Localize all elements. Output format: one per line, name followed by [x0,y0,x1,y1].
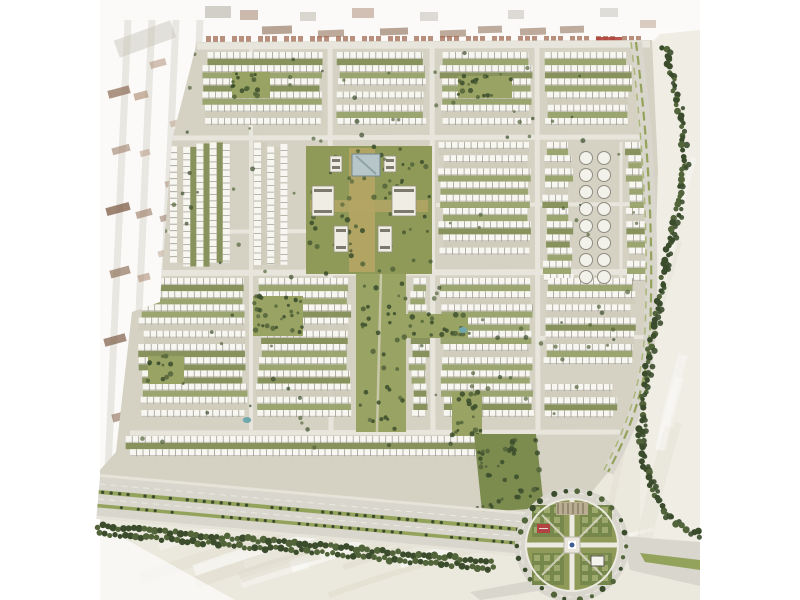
master-plan-screenshot [0,0,800,600]
site-plan-aerial-rendering [0,0,800,600]
garden-roundabout [515,488,629,600]
